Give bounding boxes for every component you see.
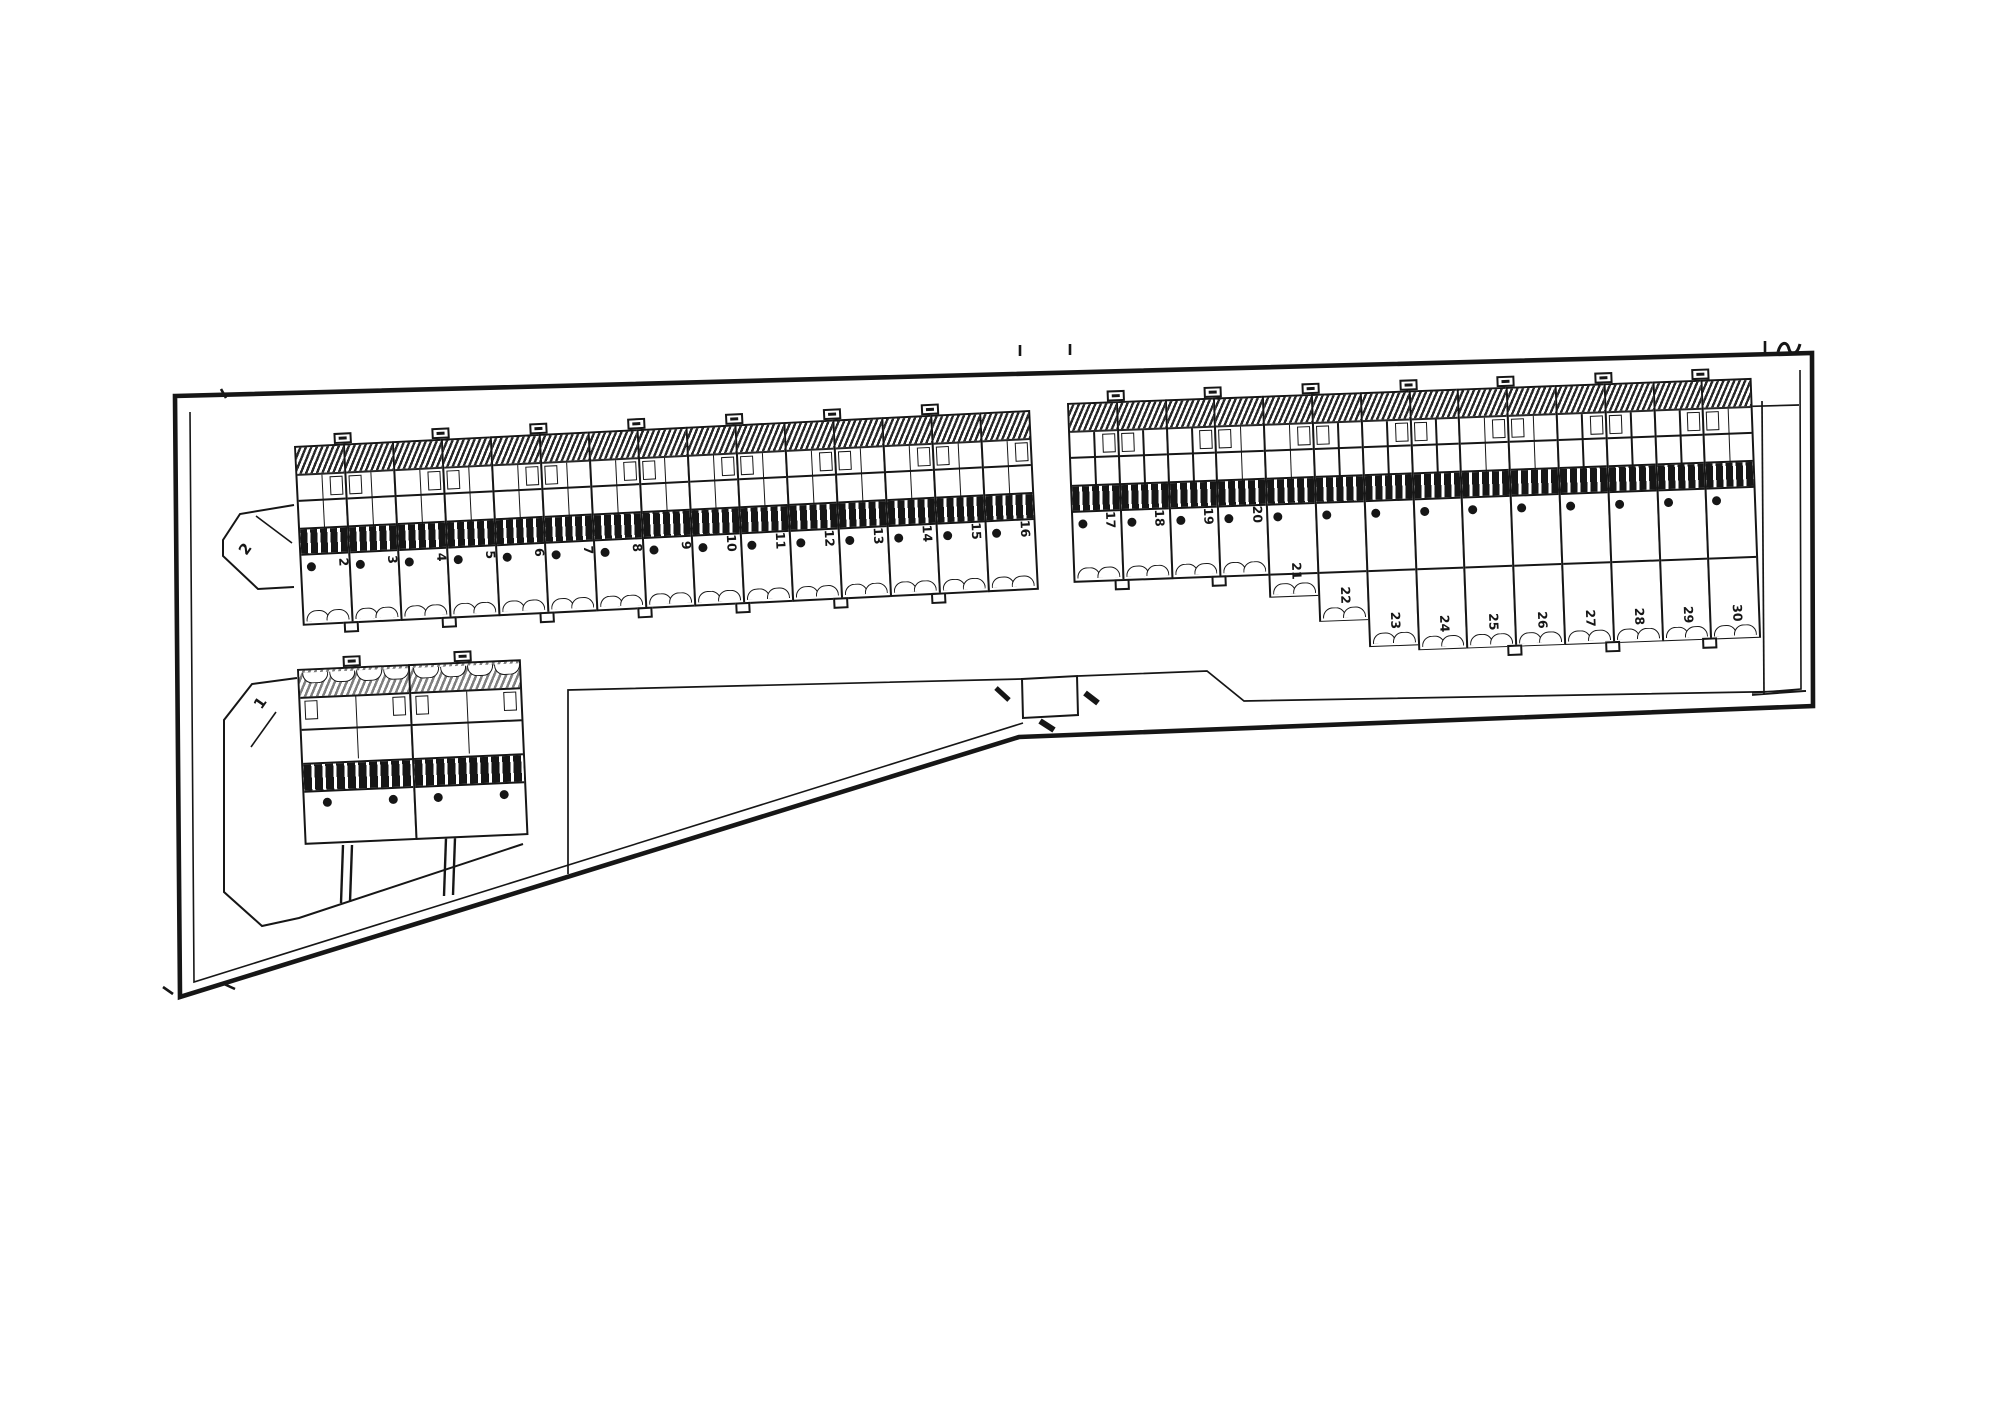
unit-number: 12 (822, 529, 835, 547)
entry-porch (823, 408, 842, 420)
rear-wall-line (1319, 570, 1366, 574)
garden-gate-porch (1605, 641, 1620, 653)
garden-scallop-icon (329, 670, 355, 682)
garden-gate-porch (344, 621, 360, 633)
tree-icon (434, 793, 443, 802)
terrace-hatch (737, 424, 785, 454)
number-strip (1512, 493, 1560, 527)
garden-scallop-icon (571, 597, 595, 609)
unit-rooms (1509, 415, 1558, 467)
terrace-hatch (1118, 401, 1166, 431)
garden-gate-porch (637, 607, 653, 619)
site-plan-canvas: 2345678910111213141516 17181920212223242… (0, 0, 2000, 1414)
terrace-hatch (834, 419, 882, 449)
duplex-unit (297, 664, 418, 845)
unit-rooms (300, 694, 412, 761)
unit-rooms (1363, 420, 1412, 472)
entry-porch (1692, 368, 1710, 380)
tree-icon (454, 555, 463, 564)
unit-rooms (395, 469, 444, 521)
unit-number: 29 (1681, 606, 1694, 624)
unit-rooms (1607, 412, 1656, 464)
unit-number: 28 (1633, 608, 1646, 626)
garden-scallop-icon (864, 582, 888, 594)
terrace-hatch (1167, 400, 1215, 430)
tree-icon (356, 560, 365, 569)
tree-icon (1322, 510, 1331, 519)
number-strip (1707, 486, 1755, 520)
tree-icon (1615, 500, 1624, 509)
road-edge-line-east (1078, 671, 1806, 701)
garden-scallop-icon (375, 606, 399, 618)
garden-scallop-icon (522, 599, 546, 611)
rowhouse-unit: 19 (1165, 398, 1222, 580)
entry-porch (1106, 390, 1124, 402)
unit-number: 17 (1104, 511, 1117, 529)
unit-rooms (411, 689, 523, 756)
garden-scallop-icon (1342, 606, 1365, 618)
duplex-unit (408, 659, 529, 840)
tree-icon (1127, 518, 1136, 527)
garden-gate-porch (735, 602, 751, 614)
garden-scallop-icon (1587, 629, 1610, 641)
number-strip: 13 (840, 525, 889, 559)
unit-number: 16 (1018, 520, 1031, 538)
tree-icon (796, 538, 805, 547)
garden-scallop-icon (302, 672, 328, 684)
entry-porch (1204, 386, 1222, 398)
garden-gate-porch (833, 597, 849, 609)
unit-rooms (1070, 431, 1119, 483)
cluster-path-stems (341, 838, 455, 903)
garden-scallop-icon (1194, 563, 1217, 575)
terrace-hatch (639, 429, 687, 459)
terrace-hatch (981, 412, 1029, 442)
garden-scallop-icon (424, 604, 448, 616)
unit-rooms (591, 459, 640, 511)
garden-scallop-icon (767, 587, 791, 599)
number-strip: 11 (742, 530, 791, 564)
number-strip: 4 (399, 547, 448, 581)
entry-porch (333, 432, 352, 444)
garden-gate-porch (442, 616, 458, 628)
number-strip: 7 (546, 540, 595, 574)
tree-icon (1566, 501, 1575, 510)
number-strip: 18 (1122, 507, 1170, 541)
unit-rooms (1411, 419, 1460, 471)
tree-icon (698, 543, 707, 552)
garden-scallop-icon (383, 668, 409, 680)
unit-rooms (1168, 428, 1217, 480)
unit-rooms (1314, 422, 1363, 474)
entry-porch (529, 423, 548, 435)
terrace-hatch (688, 426, 736, 456)
garden-gate-porch (539, 611, 555, 623)
rear-wall-line (1466, 565, 1513, 569)
garden-scallop-icon (1490, 633, 1513, 645)
terrace-hatch (1459, 389, 1507, 419)
garden-scallop-icon (1685, 626, 1708, 638)
tree-icon (649, 545, 658, 554)
terrace-hatch (1264, 396, 1312, 426)
tree-icon (499, 790, 508, 799)
garden-gate-porch (1702, 637, 1717, 649)
rowhouse-unit: 16 (979, 410, 1039, 592)
unit-rooms (1460, 417, 1509, 469)
tree-icon (307, 562, 316, 571)
unit-number: 30 (1730, 604, 1743, 622)
unit-rooms (444, 466, 493, 518)
garden-scallop-icon (1392, 631, 1415, 643)
rear-wall-line (1709, 556, 1756, 560)
unit-number: 25 (1486, 613, 1499, 631)
unit-rooms (1119, 429, 1168, 481)
terrace-hatch (443, 438, 491, 468)
unit-rooms (297, 474, 346, 526)
cluster-block (297, 659, 527, 845)
terrace-hatch (1069, 403, 1117, 433)
number-strip (304, 786, 414, 819)
number-strip: 2 (301, 551, 350, 585)
number-strip: 17 (1073, 509, 1121, 543)
unit-number: 20 (1250, 505, 1263, 523)
number-strip (1463, 495, 1511, 529)
unit-rooms (1216, 426, 1265, 478)
terrace-hatch (1215, 398, 1263, 428)
garden-scallop-icon (815, 585, 839, 597)
rear-wall-line (1661, 558, 1708, 562)
number-strip: 14 (889, 523, 938, 557)
garden-scallop-icon (1293, 582, 1316, 594)
unit-rooms (738, 452, 787, 504)
garden-scallop-icon (669, 592, 693, 604)
rear-wall-line (1514, 563, 1561, 567)
number-strip (415, 781, 525, 814)
garden-scallop-icon (1441, 635, 1464, 647)
number-strip: 3 (350, 549, 399, 583)
rear-wall-line (1417, 567, 1464, 571)
tree-icon (1468, 505, 1477, 514)
number-strip: 8 (595, 537, 644, 571)
number-strip: 15 (938, 520, 987, 554)
tree-icon (502, 553, 511, 562)
number-strip (1268, 502, 1316, 536)
unit-number: 13 (871, 527, 884, 545)
garden-gate-porch (1212, 575, 1227, 587)
rowhouse-unit: 18 (1116, 399, 1173, 581)
unit-number: 21 (1289, 562, 1302, 580)
number-strip: 6 (497, 542, 546, 576)
number-strip (1561, 491, 1609, 525)
terrace-hatch (883, 417, 931, 447)
number-strip: 16 (986, 518, 1035, 552)
terrace-hatch (1654, 382, 1702, 412)
tree-icon (845, 536, 854, 545)
terrace-hatch (1362, 392, 1410, 422)
number-strip: 12 (791, 528, 840, 562)
terrace-hatch (541, 434, 589, 464)
number-strip (1658, 488, 1706, 522)
terrace-hatch (1313, 394, 1361, 424)
unit-number: 27 (1584, 609, 1597, 627)
unit-rooms (1655, 410, 1704, 462)
garden-scallop-icon (1146, 564, 1169, 576)
unit-rooms (1558, 413, 1607, 465)
row-a-label-leader (256, 516, 292, 543)
entry-porch (453, 650, 471, 662)
rear-wall-line (1563, 561, 1610, 565)
unit-rooms (689, 454, 738, 506)
number-strip (1366, 498, 1414, 532)
terrace-hatch (786, 422, 834, 452)
tree-icon (943, 531, 952, 540)
rowhouse-unit: 20 (1213, 396, 1270, 578)
number-strip (1609, 489, 1657, 523)
tree-icon (992, 529, 1001, 538)
tree-icon (1176, 516, 1185, 525)
garden-scallop-icon (962, 577, 986, 589)
garden-scallop-icon (356, 669, 382, 681)
entrance-tick-icon (1085, 693, 1098, 703)
garden-scallop-icon (1636, 627, 1659, 639)
garden-scallop-icon (718, 589, 742, 601)
unit-rooms (934, 442, 983, 494)
entry-porch (342, 655, 360, 667)
tree-icon (1078, 519, 1087, 528)
garden-scallop-icon (1011, 575, 1035, 587)
garden-scallop-icon (413, 667, 439, 679)
terrace-hatch (932, 414, 980, 444)
garden-scallop-icon (440, 666, 466, 678)
unit-rooms (787, 450, 836, 502)
entry-porch (921, 403, 940, 415)
tree-icon (1420, 507, 1429, 516)
terrace-hatch (590, 431, 638, 461)
unit-number: 14 (920, 524, 933, 542)
unit-rooms (1704, 408, 1753, 460)
rear-wall-line (1368, 568, 1415, 572)
unit-number: 18 (1153, 509, 1166, 527)
entry-porch (1399, 379, 1417, 391)
garden-scallop-icon (1097, 566, 1120, 578)
garden-scallop-icon (1539, 631, 1562, 643)
number-strip: 9 (644, 535, 693, 569)
number-strip: 10 (693, 532, 742, 566)
unit-number: 26 (1535, 611, 1548, 629)
entry-porch (1496, 376, 1514, 388)
rowhouse-unit: 17 (1067, 401, 1124, 583)
rowhouse-unit: 30 (1701, 378, 1761, 640)
unit-rooms (542, 462, 591, 514)
terrace-hatch (1703, 380, 1751, 410)
garden-scallop-icon (913, 580, 937, 592)
terrace-hatch (394, 441, 442, 471)
tree-icon (747, 541, 756, 550)
unit-number: 19 (1201, 507, 1214, 525)
tree-icon (551, 550, 560, 559)
garden-gate-porch (931, 592, 947, 604)
entrance-tick-icon (996, 688, 1009, 700)
terrace-hatch (1557, 385, 1605, 415)
entry-porch (725, 413, 744, 425)
terrace-hatch (1606, 384, 1654, 414)
garden-scallop-icon (1243, 561, 1266, 573)
entrance-tick-icon (1040, 721, 1054, 730)
terrace-hatch (345, 443, 393, 473)
tree-icon (1273, 512, 1282, 521)
tree-icon (1663, 498, 1672, 507)
row-b-block: 1718192021222324252627282930 (1067, 378, 1759, 663)
terrace-hatch (296, 446, 344, 476)
garden-scallop-icon (326, 609, 350, 621)
cluster-label-leader (251, 712, 276, 747)
unit-number: 10 (724, 534, 737, 552)
number-strip: 5 (448, 544, 497, 578)
number-strip: 19 (1170, 506, 1218, 540)
unit-number: 23 (1389, 611, 1402, 629)
tree-icon (405, 557, 414, 566)
unit-number: 15 (969, 522, 982, 540)
terrace-hatch (492, 436, 540, 466)
inner-setback-line-right (1752, 370, 1801, 693)
tree-icon (323, 798, 332, 807)
entry-porch (431, 427, 450, 439)
unit-rooms (836, 447, 885, 499)
unit-rooms (493, 464, 542, 516)
garden-scallop-icon (494, 663, 520, 675)
unit-number: 24 (1437, 615, 1450, 633)
number-strip (1317, 500, 1365, 534)
tree-icon (1371, 509, 1380, 518)
garden-scallop-icon (473, 601, 497, 613)
unit-rooms (885, 445, 934, 497)
unit-rooms (640, 457, 689, 509)
tree-icon (894, 533, 903, 542)
tree-icon (1712, 496, 1721, 505)
number-strip: 20 (1219, 504, 1267, 538)
garden-scallop-icon (620, 594, 644, 606)
tree-icon (600, 548, 609, 557)
tree-icon (389, 795, 398, 804)
unit-number: 22 (1339, 586, 1352, 604)
terrace-hatch (1508, 387, 1556, 417)
garden-gate-porch (1507, 644, 1522, 656)
unit-rooms (346, 471, 395, 523)
garden-scallop-icon (1734, 624, 1757, 636)
unit-rooms (1265, 424, 1314, 476)
row-a-block: 2345678910111213141516 (294, 410, 1037, 626)
tree-icon (1225, 514, 1234, 523)
entry-porch (1594, 372, 1612, 384)
garden-scallop-icon (467, 664, 493, 676)
entry-porch (1301, 383, 1319, 395)
tree-icon (1517, 503, 1526, 512)
garden-gate-porch (1114, 579, 1129, 591)
entry-porch (627, 418, 646, 430)
unit-number: 11 (773, 532, 786, 550)
terrace-hatch (1410, 391, 1458, 421)
number-strip (1414, 497, 1462, 531)
entrance-gatehouse (1022, 676, 1078, 718)
unit-rooms (983, 440, 1032, 492)
rear-wall-line (1612, 559, 1659, 563)
